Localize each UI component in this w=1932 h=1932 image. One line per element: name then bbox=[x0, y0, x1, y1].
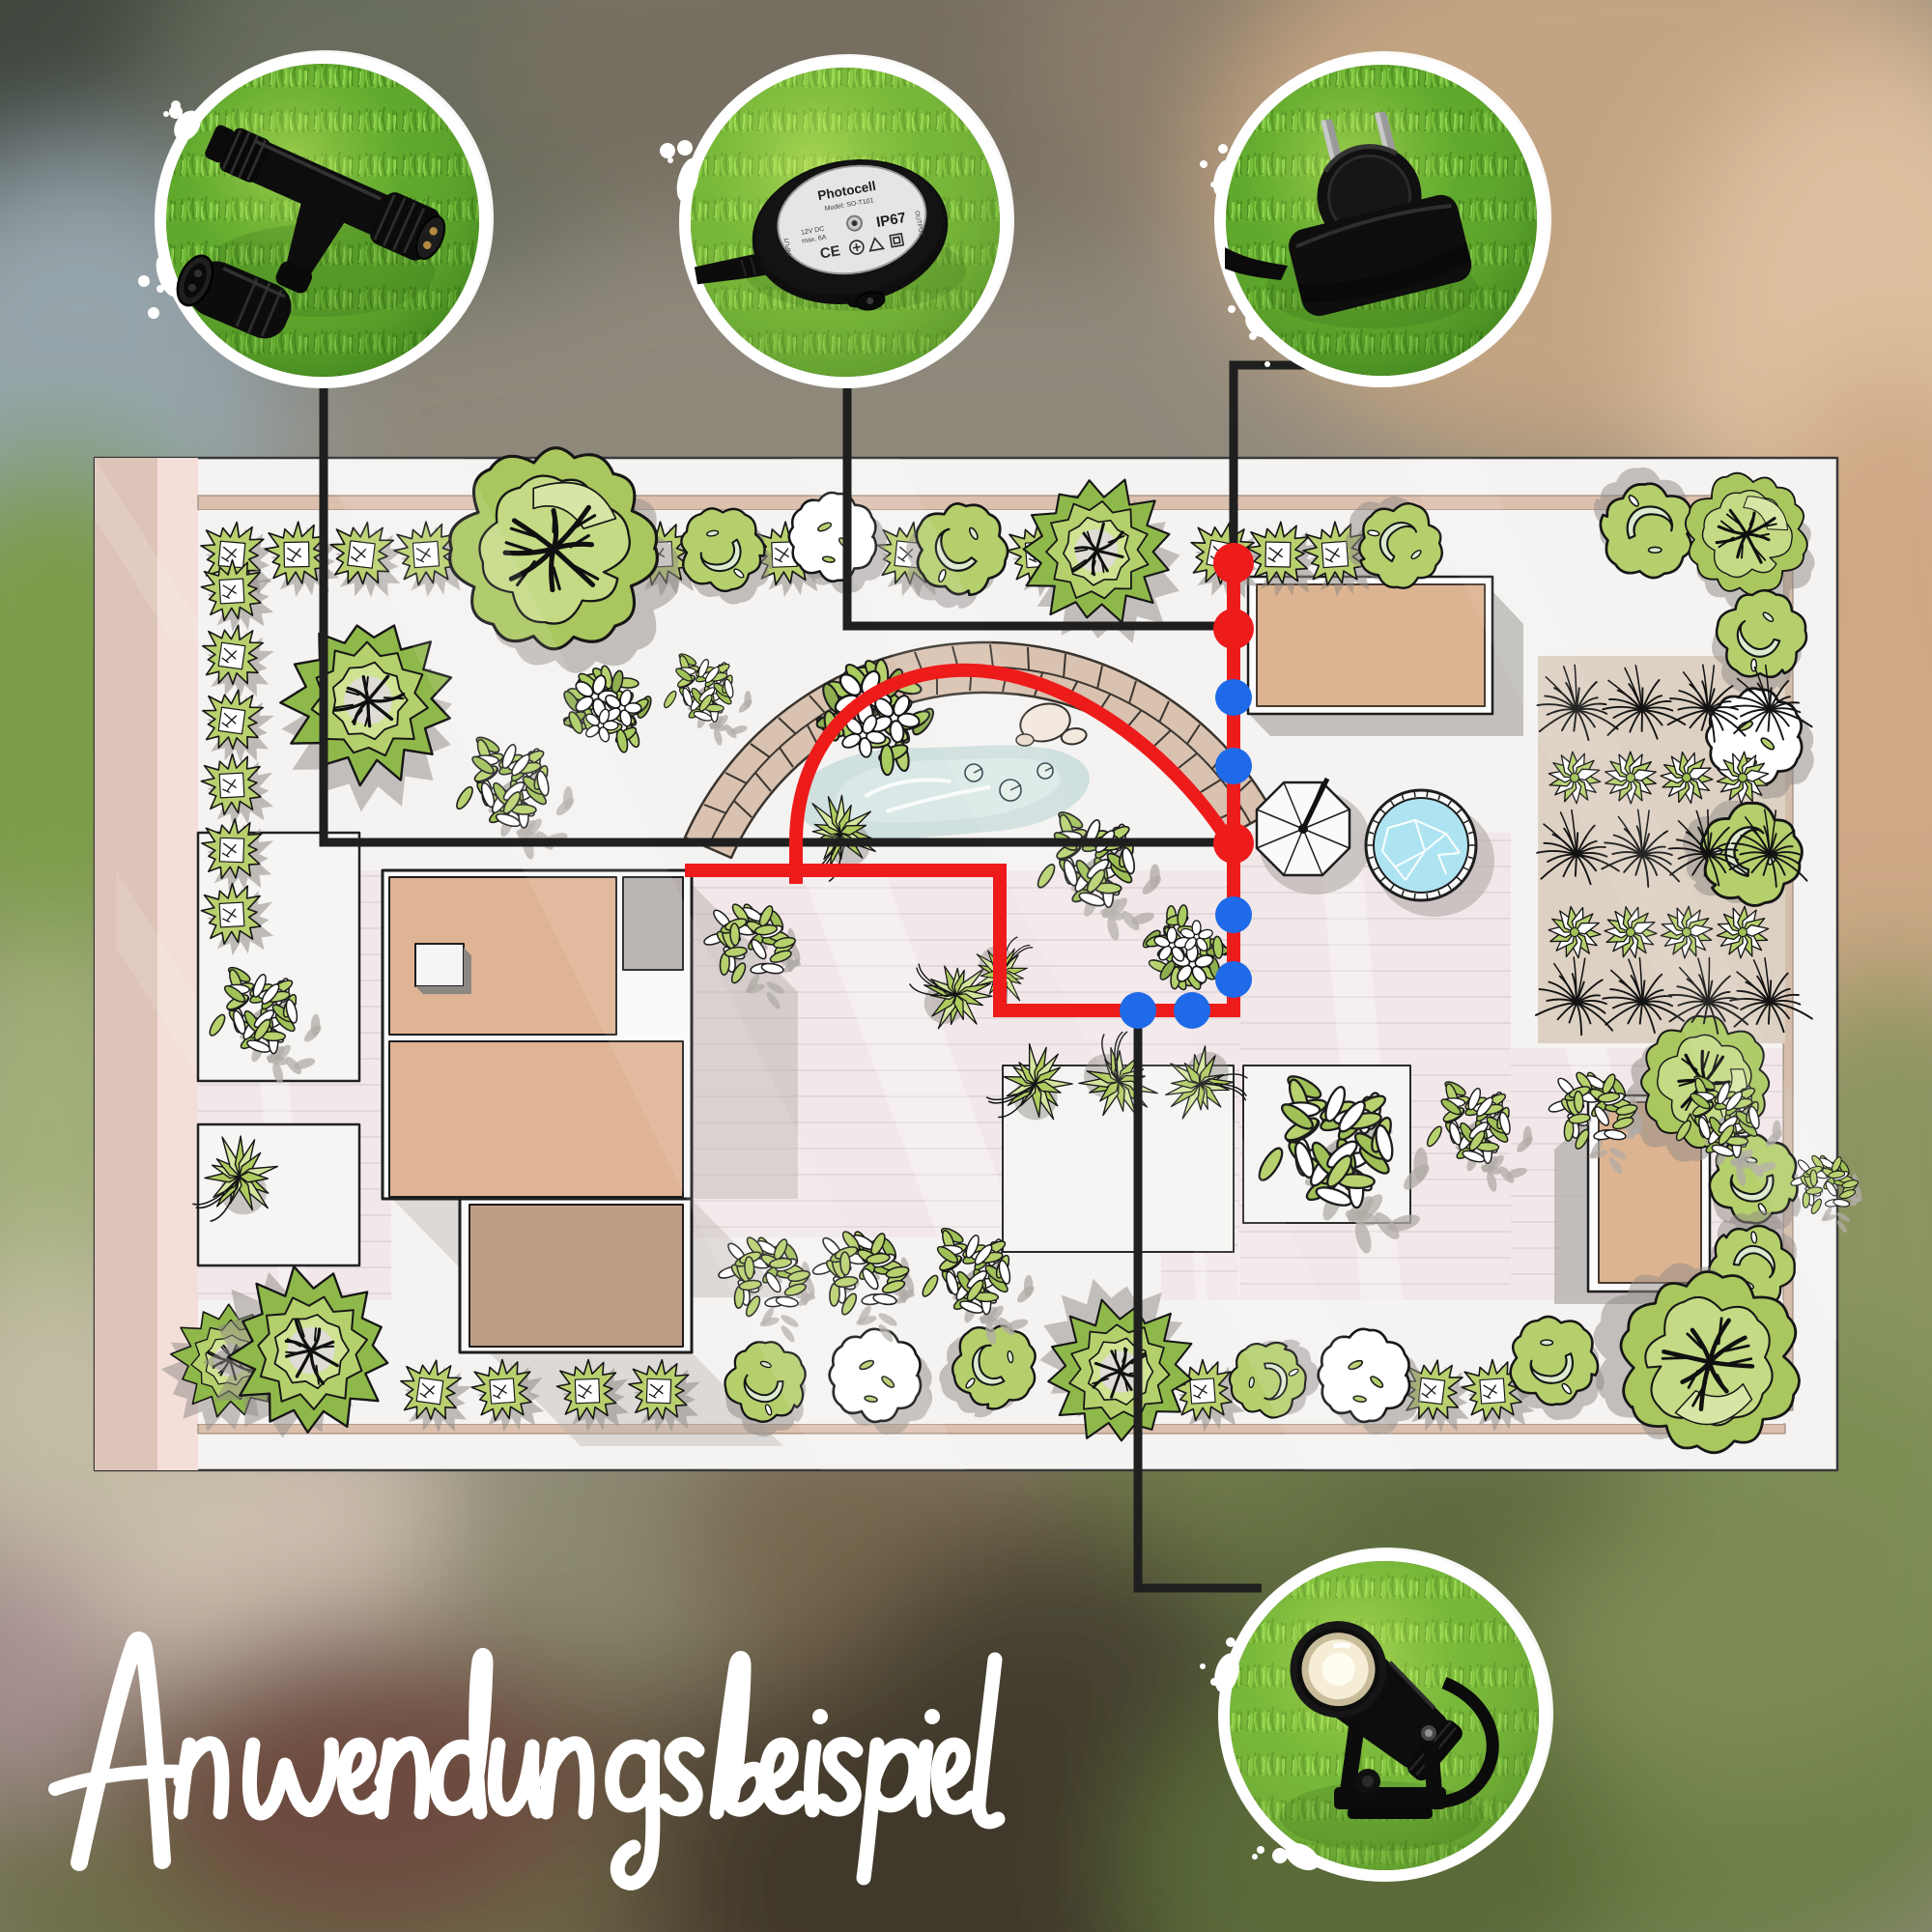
svg-text:CE: CE bbox=[819, 242, 841, 262]
